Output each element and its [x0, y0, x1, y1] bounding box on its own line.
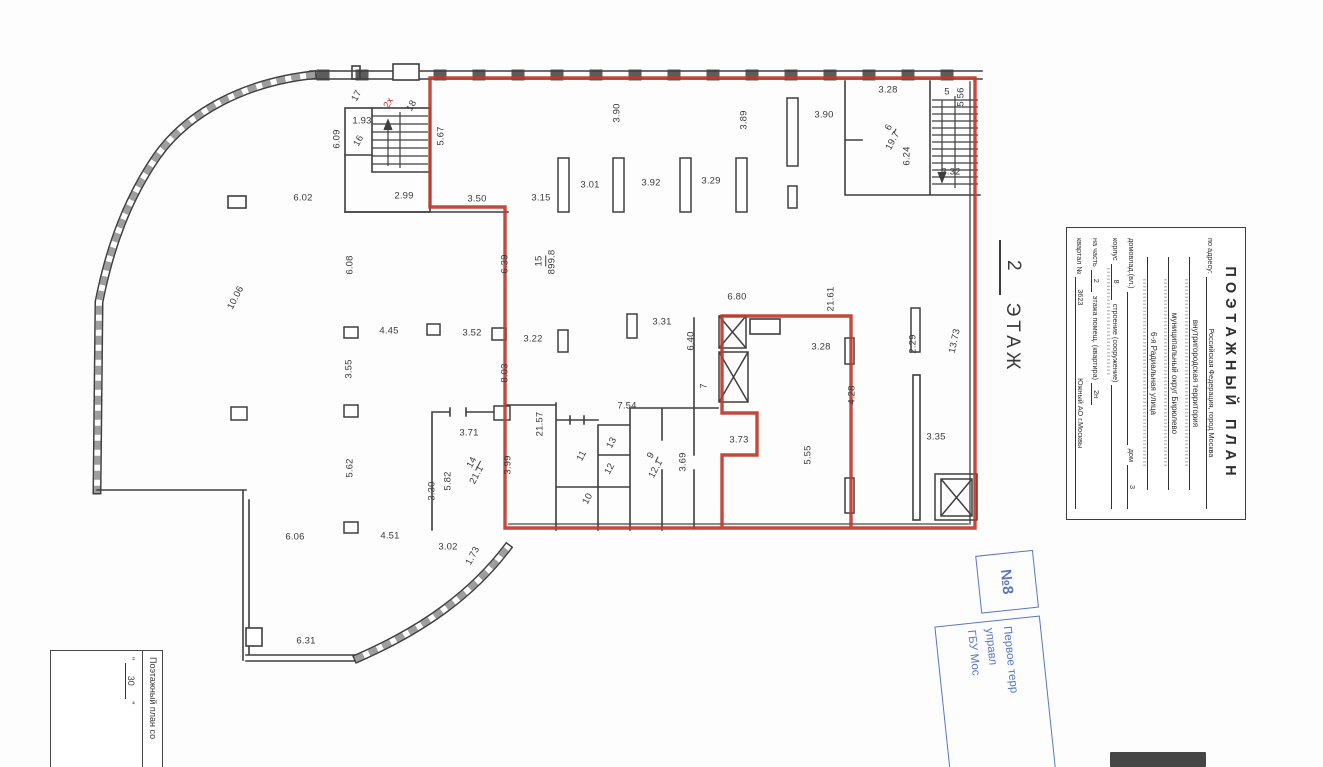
registration-stamp: №8 Первое терр управл ГБУ Мос [914, 550, 1058, 767]
ownership-label: домовлад.(вл.) [1127, 238, 1136, 289]
dimension-label: 6.08 [345, 255, 355, 274]
staircase-left [372, 112, 428, 168]
dimension-label: 3.69 [678, 452, 688, 471]
dimension-label: 5.56 [956, 87, 966, 106]
dimension-label: 8.03 [500, 363, 510, 382]
dimension-label: 6.40 [686, 331, 696, 350]
dimension-label: 3.29 [701, 176, 720, 186]
dimension-label: 3.52 [462, 328, 481, 338]
dimension-label: 5.55 [803, 445, 813, 464]
dimension-label: 3.92 [641, 178, 660, 188]
dimension-label: 3.02 [438, 542, 457, 552]
floor-number: 2 [1000, 240, 1025, 295]
dimension-label: 3.31 [652, 317, 671, 327]
dimension-label: 3.55 [344, 359, 354, 378]
territory-line: внутригородская территория [1189, 257, 1200, 490]
house-label: дом [1127, 449, 1136, 462]
dimension-label: 15 [534, 256, 546, 267]
dimension-label: 6.31 [296, 636, 315, 646]
dimension-label: 5.62 [345, 458, 355, 477]
cutoff-stamp [1110, 752, 1206, 767]
dimension-label: 5.82 [443, 471, 453, 490]
dimension-label: 4.28 [847, 385, 857, 404]
dimension-label: 3.73 [729, 435, 748, 445]
floor-label: 2 ЭТАЖ [994, 240, 1030, 450]
korpus-label: корпус [1111, 238, 1120, 261]
dimension-label: 6.39 [500, 254, 510, 273]
district-line: муниципальный округ Бирюлево [1168, 257, 1179, 490]
dimension-label: 3.90 [814, 110, 833, 120]
dimension-label: 3.28 [878, 85, 897, 95]
title-block: ПОЭТАЖНЫЙ ПЛАН по адресу: Российская Фед… [1066, 227, 1246, 520]
dimension-label: 3.71 [459, 428, 478, 438]
dimension-label: 2.99 [394, 191, 413, 201]
okrug-value: Южный АО г.Москвы [1075, 317, 1085, 509]
floor-word: ЭТАЖ [1001, 303, 1023, 374]
dimension-label: 3.22 [523, 334, 542, 344]
dimension-label: 2.29 [908, 334, 918, 353]
fine-print [1164, 279, 1167, 469]
dimension-label: 6.02 [293, 193, 312, 203]
floor-room-label: этажа помещ. (квартира) [1091, 296, 1100, 380]
title-block-title: ПОЭТАЖНЫЙ ПЛАН [1222, 238, 1238, 509]
street-line: 6-я Радиальная улица [1147, 257, 1158, 490]
korpus-value: 8 [1111, 264, 1121, 300]
dimension-label: 6.80 [727, 292, 746, 302]
dimension-label: 3.89 [739, 110, 749, 129]
part-label: на часть [1091, 238, 1100, 267]
corner-table: Поэтажный план со " 30 " [50, 650, 163, 767]
kvartal-label: квартал № [1075, 238, 1084, 274]
dimension-label: 21.57 [535, 412, 545, 437]
dimension-label: 3.15 [531, 193, 550, 203]
dimension-label: 4.51 [380, 531, 399, 541]
dimension-label: 6.06 [285, 532, 304, 542]
dimension-label: 1.93 [352, 116, 371, 126]
fine-print [1107, 268, 1110, 376]
kvartal-value: 3623 [1075, 277, 1085, 317]
dimension-label: 3.32 [941, 167, 960, 177]
scale-quote-open: " [126, 657, 136, 660]
dimension-label: 5.67 [436, 126, 446, 145]
dimension-label: 3.01 [580, 180, 599, 190]
dimension-label: 6.09 [332, 129, 342, 148]
dimension-label: 3.28 [811, 342, 830, 352]
dimension-label: 3.50 [467, 194, 486, 204]
dimension-label: 5 [944, 87, 949, 97]
dimension-label: 4.45 [379, 326, 398, 336]
room-value: 2н [1091, 383, 1101, 405]
dimension-label: 7.54 [617, 401, 636, 411]
dimension-label: 7 [699, 383, 709, 388]
dimension-label: 6.24 [902, 146, 912, 165]
stamp-text-box: Первое терр управл ГБУ Мос [934, 616, 1057, 767]
dimension-label: 3.90 [612, 103, 622, 122]
address-label: по адресу: [1206, 238, 1215, 274]
fine-print [1185, 279, 1188, 469]
fine-print [1143, 279, 1146, 469]
scale-quote-close: " [126, 701, 136, 704]
scanned-floor-plan-page: 172х181.93166.095.672.993.503.153.903.89… [0, 0, 1323, 767]
dimension-label: 899.8 [547, 250, 557, 275]
address-value: Российская Федерация, город Москва [1206, 277, 1216, 509]
corner-table-caption: Поэтажный план со [142, 651, 162, 767]
dimension-label: 3.99 [503, 455, 513, 474]
stamp-number-box: №8 [975, 550, 1039, 614]
dimension-label: 3.30 [427, 481, 437, 500]
dimension-label: 3.35 [926, 432, 945, 442]
scale-value: 30 [125, 663, 136, 699]
part-value: 2 [1091, 270, 1101, 292]
stroenie-label: строение (сооружение) [1111, 304, 1120, 383]
house-value: 3 [1127, 465, 1137, 509]
dimension-label: 21.61 [826, 287, 836, 312]
